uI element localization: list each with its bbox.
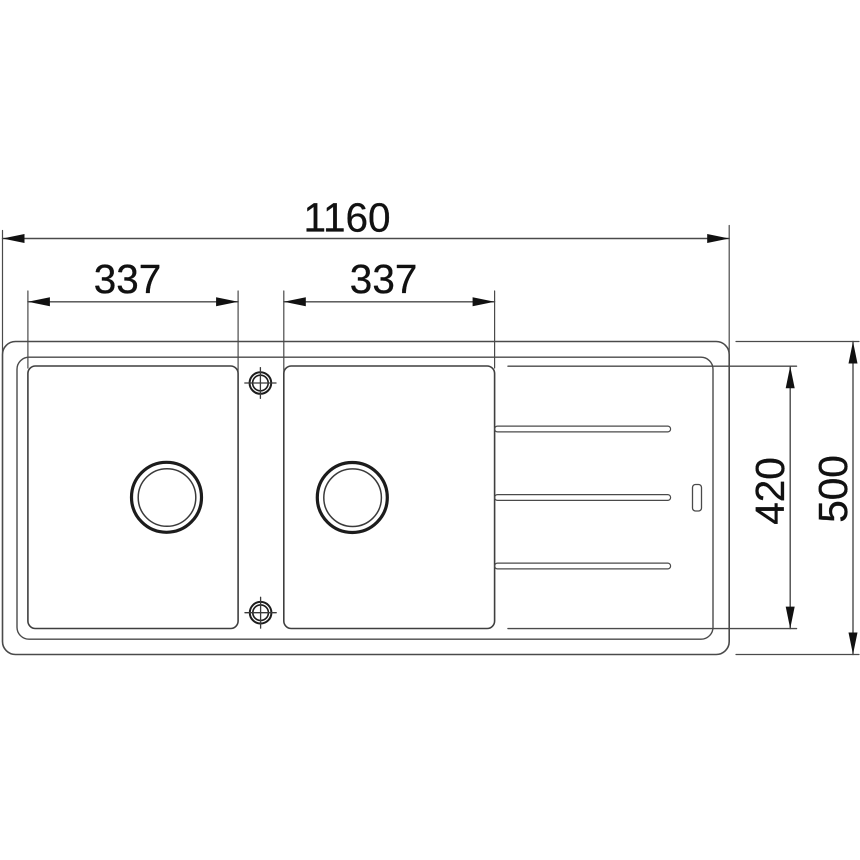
svg-text:500: 500 (810, 455, 856, 523)
svg-text:337: 337 (94, 256, 162, 302)
svg-text:337: 337 (350, 256, 418, 302)
svg-text:420: 420 (747, 457, 793, 525)
svg-text:1160: 1160 (303, 195, 390, 241)
